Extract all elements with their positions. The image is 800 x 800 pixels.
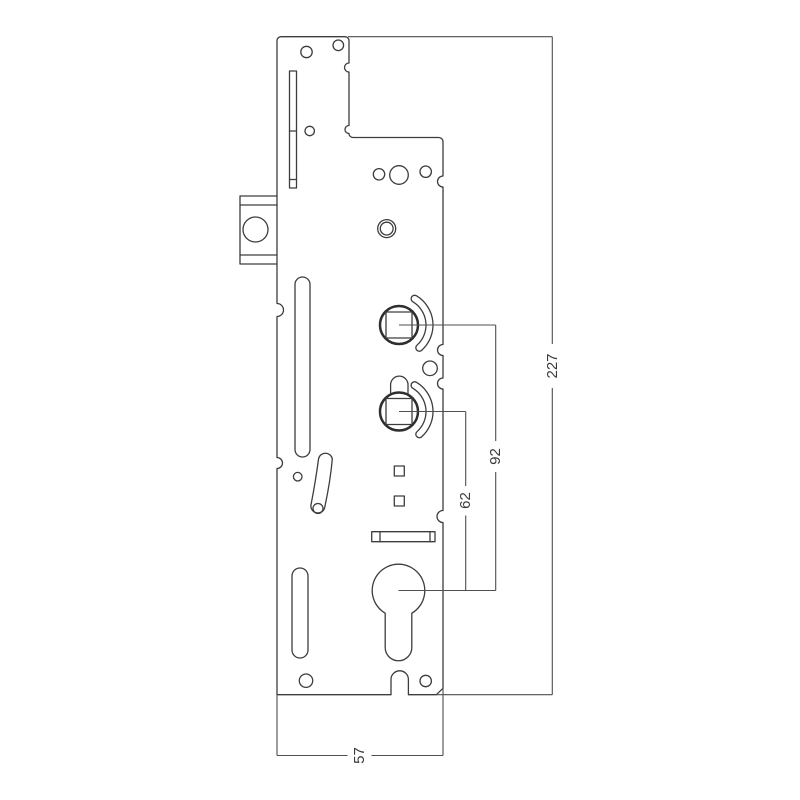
guide-slot-lower — [292, 568, 308, 658]
dim-label-57: 57 — [351, 747, 368, 764]
thin-slot-dividers — [290, 131, 297, 180]
backplate-outline — [277, 37, 443, 695]
screw-hole-top-left — [301, 46, 312, 57]
bar-slot-dividers — [380, 532, 430, 542]
screw-hole-bottom-right — [420, 675, 431, 686]
lock-gearbox-technical-drawing: 227 92 62 57 — [0, 0, 800, 800]
drawing-svg: 227 92 62 57 — [0, 0, 800, 800]
hole-trio-right — [420, 166, 431, 177]
dim-label-92: 92 — [487, 448, 504, 465]
lever-arm — [311, 453, 332, 513]
bar-slot — [372, 532, 435, 542]
latch-bolt-hole — [243, 217, 268, 242]
square-hole-lower — [394, 496, 404, 506]
guide-slot-upper — [295, 277, 310, 457]
bushing-ring-inner — [380, 222, 393, 235]
screw-hole-top-right — [333, 40, 344, 51]
dim-label-227: 227 — [544, 353, 561, 378]
dim-label-62: 62 — [457, 492, 474, 509]
small-hole-mid-left — [293, 472, 302, 481]
small-hole-upper-left — [305, 126, 314, 135]
hole-trio-center — [390, 166, 409, 185]
square-hole-upper — [394, 466, 404, 476]
hole-trio-left — [373, 169, 384, 180]
latch-bolt-outline — [240, 196, 277, 264]
euro-cylinder-cutout — [372, 564, 425, 661]
thin-slot — [290, 71, 297, 188]
screw-hole-bottom-left — [299, 674, 312, 687]
edge-hole-mid — [423, 361, 438, 376]
